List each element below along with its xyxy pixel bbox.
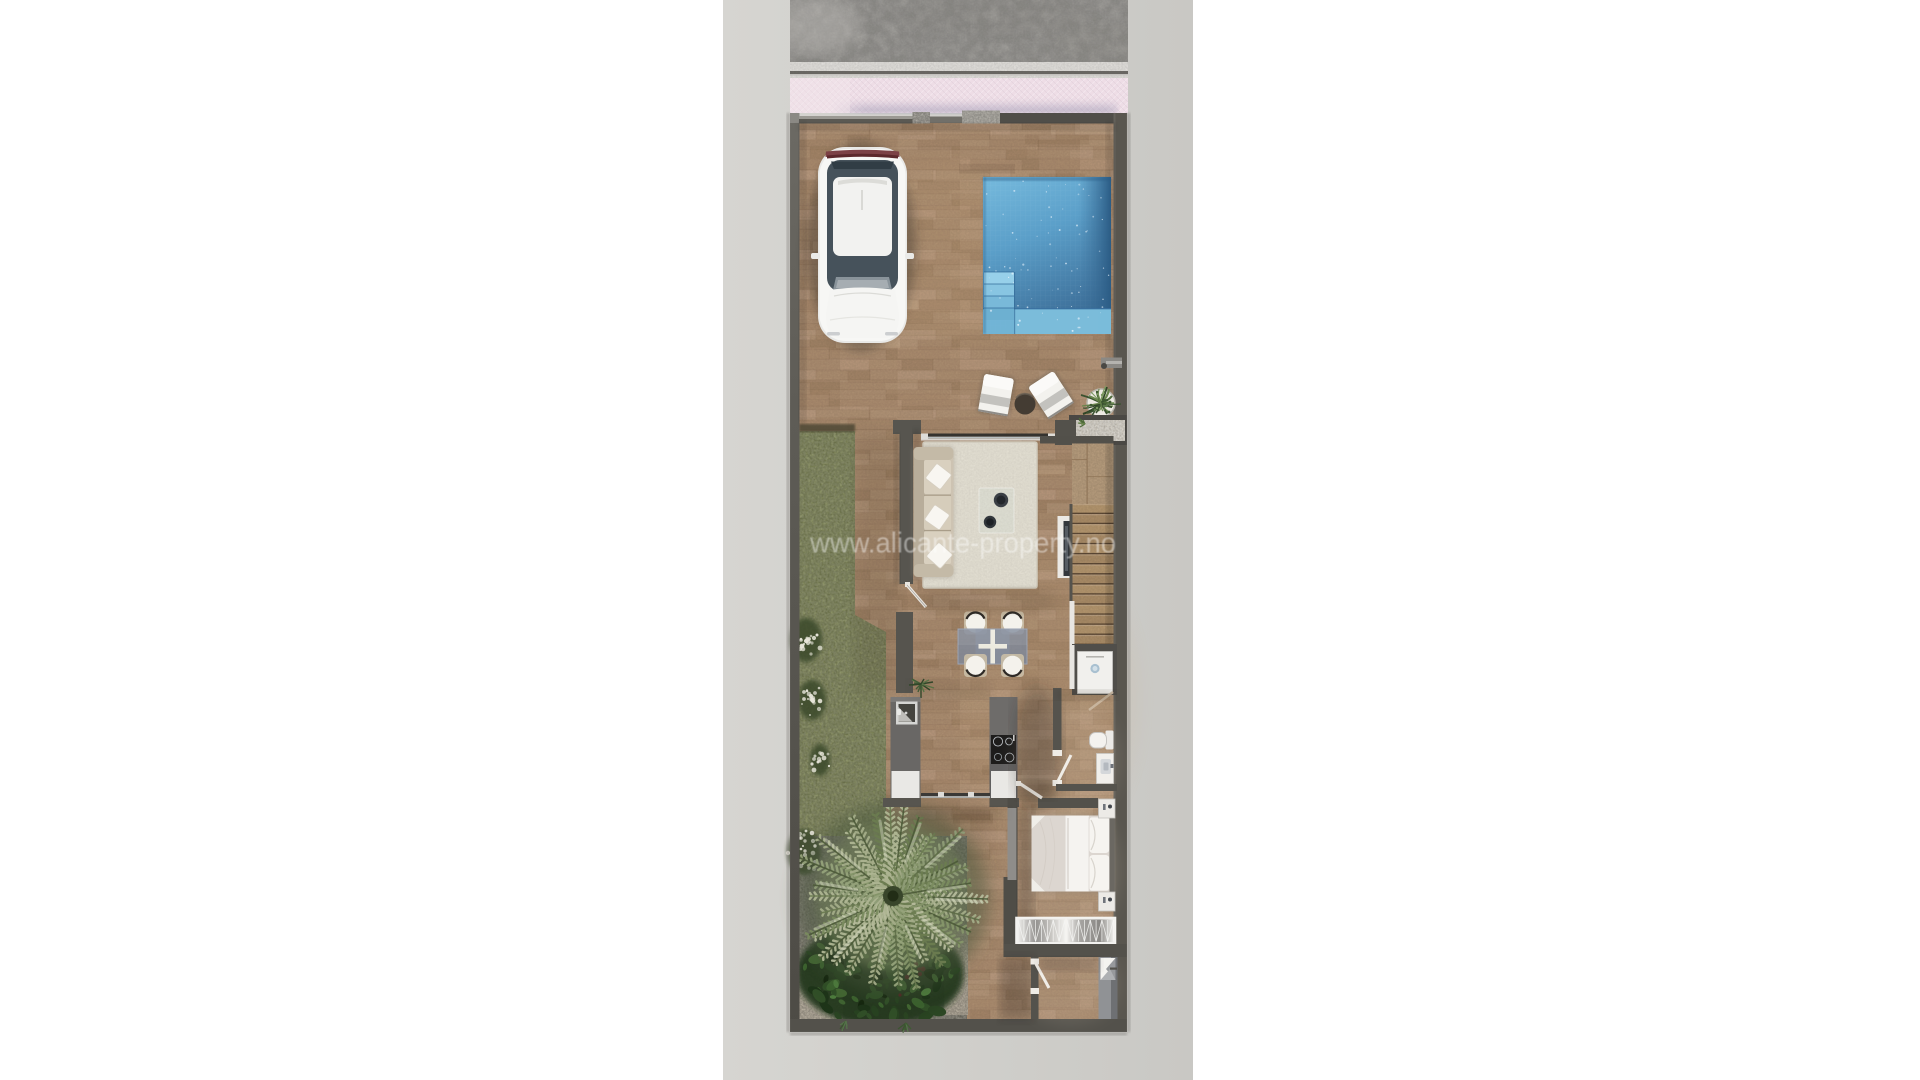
svg-text:www.alicante-property.no: www.alicante-property.no [809, 528, 1116, 560]
